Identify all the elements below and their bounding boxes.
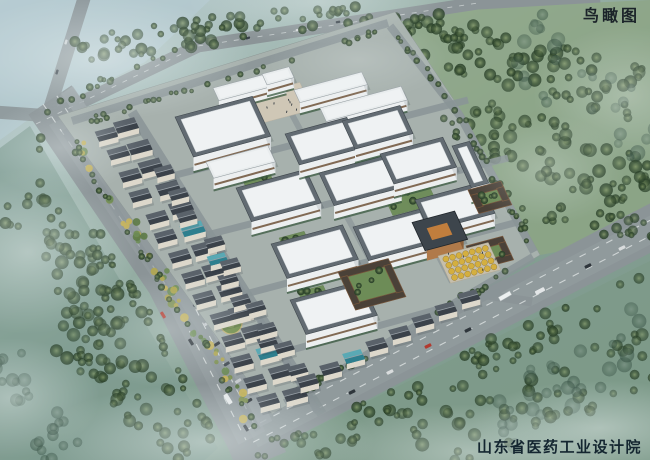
birdseye-rendering: 鸟瞰图 山东省医药工业设计院 <box>0 0 650 460</box>
designer-credit-label: 山东省医药工业设计院 <box>477 440 642 455</box>
view-title-label: 鸟瞰图 <box>583 9 640 25</box>
render-scene-canvas <box>0 0 650 460</box>
